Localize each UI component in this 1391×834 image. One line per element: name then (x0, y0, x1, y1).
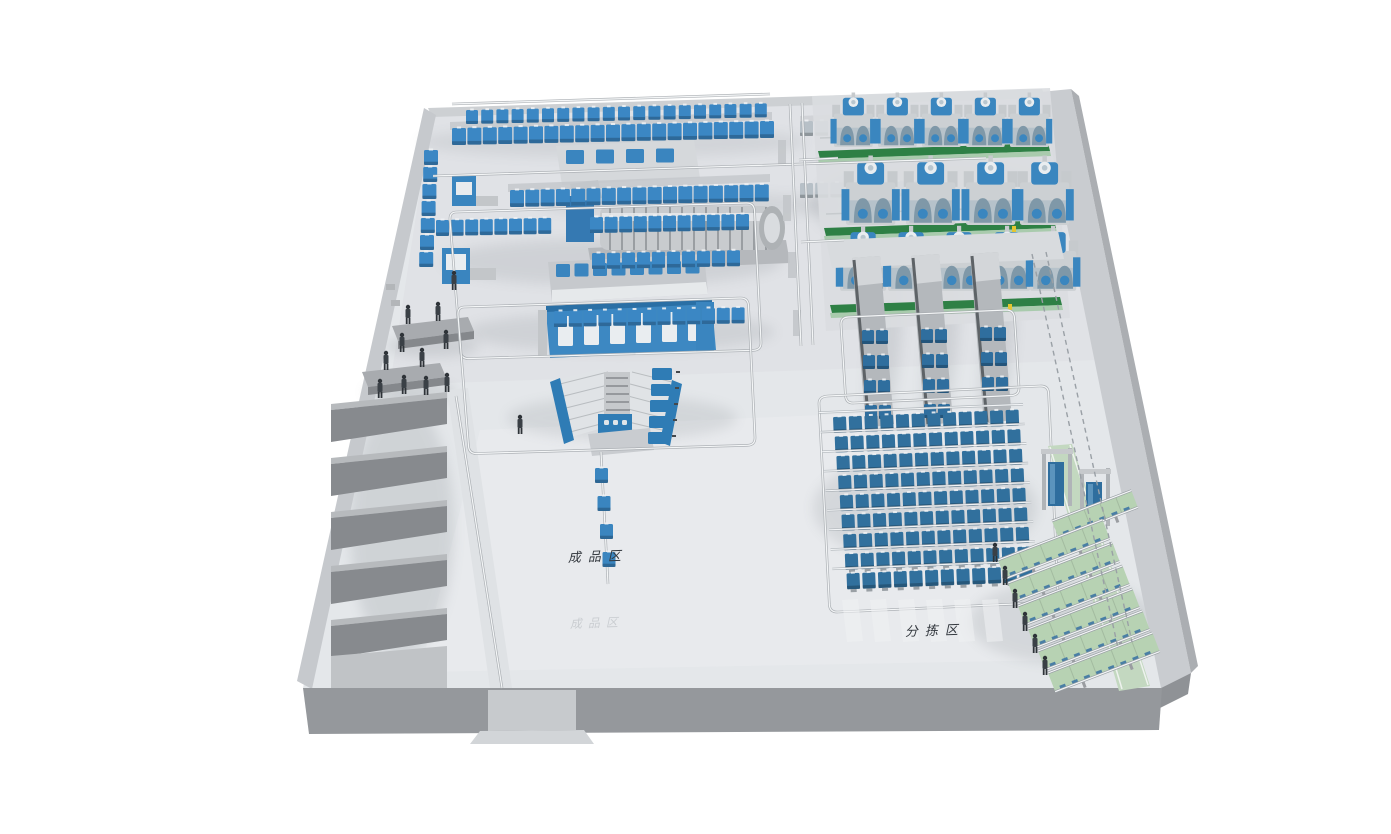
front-wall (303, 688, 1162, 734)
zone-label-sorting: 分拣区 (905, 623, 966, 640)
front-door-recess (488, 690, 576, 731)
factory-layout-canvas: 成品区成品区分拣区 (0, 0, 1391, 834)
lift-post (1042, 452, 1046, 510)
zone-label-sorting: 分拣区 (905, 623, 966, 640)
rail-pillar (788, 252, 796, 278)
front-door-ramp (470, 730, 594, 744)
warning-lamp (1012, 226, 1016, 232)
wall-stub (391, 300, 400, 306)
zone-label-finished-goods-watermark: 成品区 (570, 615, 624, 631)
factory-3d-view: 成品区成品区分拣区 (0, 0, 1391, 834)
folder-box-lamps (604, 420, 627, 425)
zone-label-finished-goods-watermark: 成品区 (570, 615, 624, 631)
lift-post (1068, 448, 1072, 506)
tunnel-washer-cap-inner (764, 213, 780, 243)
small-machine-top (446, 254, 466, 270)
small-machine-conveyor (476, 196, 498, 206)
zone-label-finished-goods: 成品区 (568, 549, 629, 566)
washer-extractor-row (830, 92, 1052, 147)
lift-panel-light (1050, 464, 1055, 504)
dryer-pillar (538, 310, 547, 356)
rail-pillar (778, 140, 786, 166)
small-machine-conveyor (470, 268, 496, 280)
zone-label-finished-goods: 成品区 (568, 549, 629, 566)
lift-header (1041, 449, 1073, 454)
small-machine-top (456, 182, 472, 195)
rail-pillar (783, 195, 791, 221)
wall-stub (386, 284, 395, 290)
